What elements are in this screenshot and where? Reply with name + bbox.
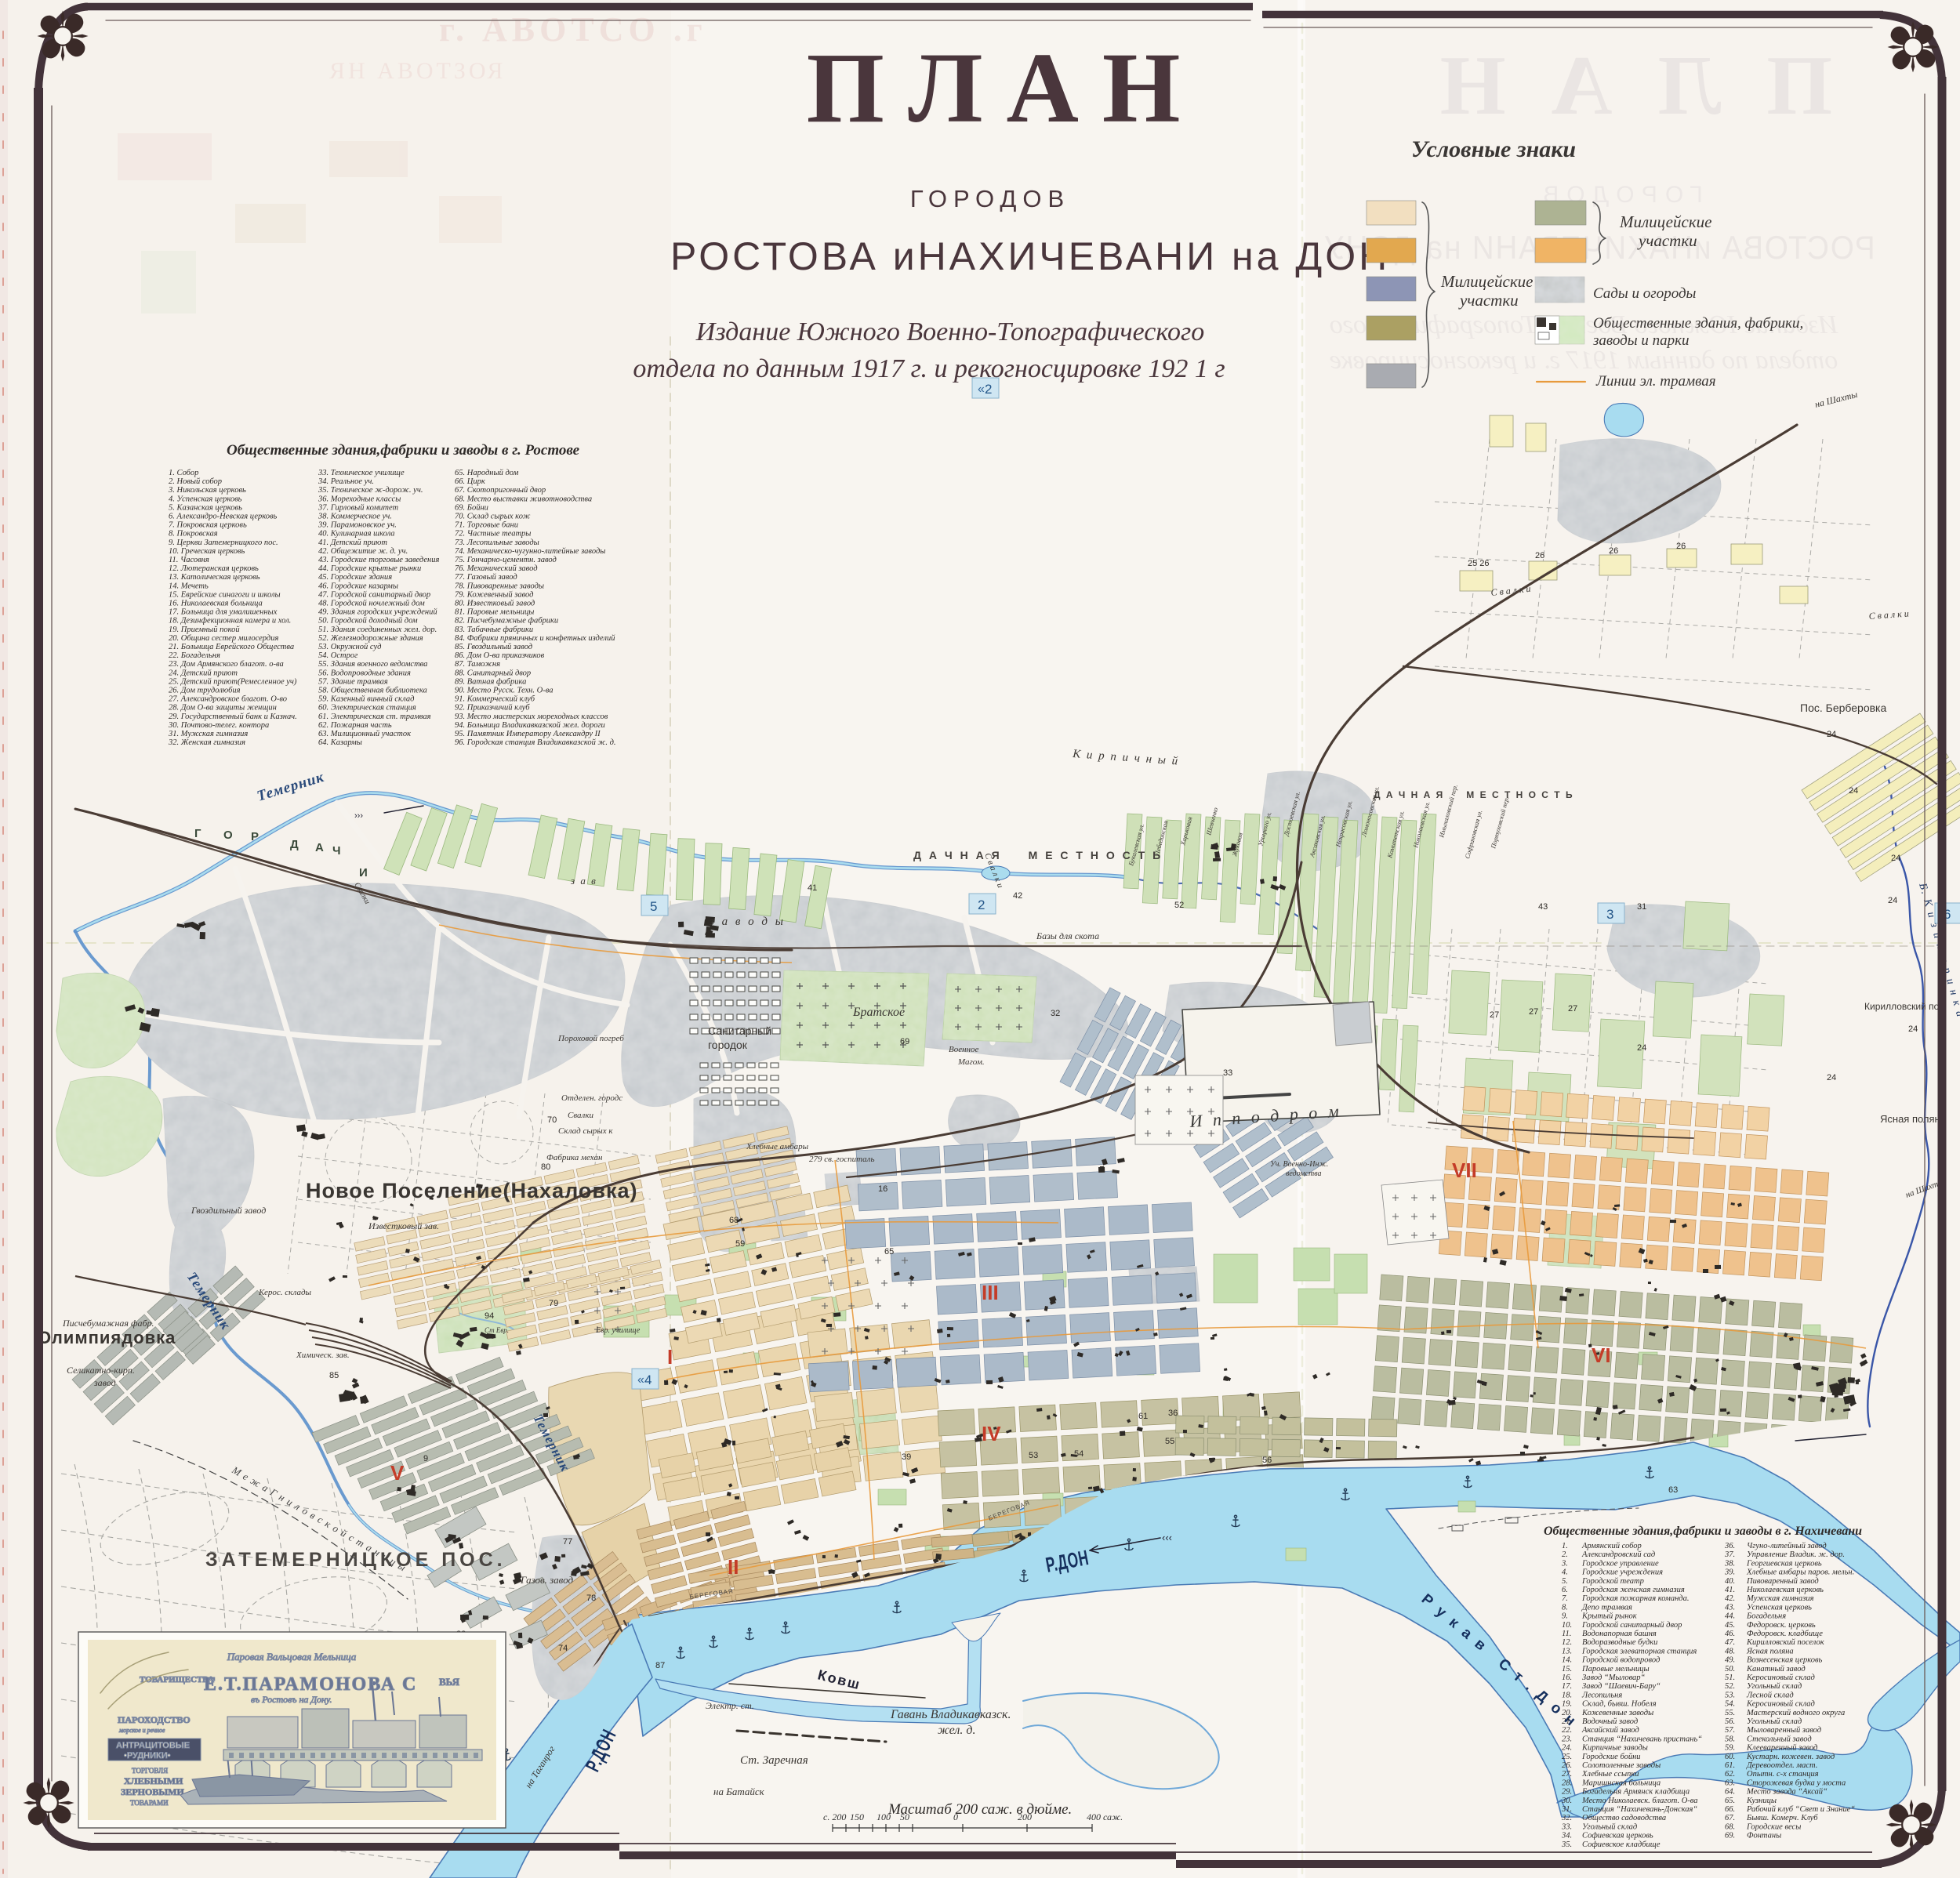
svg-text:на Батайск: на Батайск (713, 1786, 765, 1797)
svg-text:Гавань Владикавказск.: Гавань Владикавказск. (890, 1708, 1011, 1721)
svg-text:Деревоотдел. маст.: Деревоотдел. маст. (1746, 1761, 1817, 1770)
svg-text:Отделен. городс: Отделен. городс (561, 1093, 622, 1103)
svg-text:37. Гирловый комитет: 37. Гирловый комитет (318, 503, 399, 512)
svg-text:77. Газовый завод: 77. Газовый завод (455, 573, 517, 582)
svg-text:Лесопильня: Лесопильня (1581, 1691, 1622, 1699)
svg-text:Кожевенные заводы: Кожевенные заводы (1581, 1709, 1653, 1717)
svg-text:Солотоленные заводы: Солотоленные заводы (1582, 1761, 1661, 1770)
svg-text:100: 100 (877, 1811, 891, 1822)
svg-text:Водоразводные будки: Водоразводные будки (1582, 1638, 1657, 1647)
svg-text:г. АВОТСО .г: г. АВОТСО .г (439, 10, 707, 49)
svg-text:Хлебные амбары паров. мельн.: Хлебные амбары паров. мельн. (1746, 1568, 1854, 1577)
svg-text:15. Еврейские синагоги и школы: 15. Еврейские синагоги и школы (169, 590, 281, 599)
svg-text:•РУДНИКИ•: •РУДНИКИ• (124, 1751, 171, 1761)
svg-text:26: 26 (1609, 546, 1618, 556)
svg-text:45. Городские здания: 45. Городские здания (318, 573, 392, 582)
svg-text:2.: 2. (1562, 1550, 1568, 1559)
svg-text:Городское управление: Городское управление (1581, 1559, 1659, 1568)
svg-text:Фонтаны: Фонтаны (1747, 1832, 1781, 1840)
svg-text:Кирилловский пос.: Кирилловский пос. (1864, 1001, 1947, 1012)
svg-text:Вознесенская церковь: Вознесенская церковь (1747, 1656, 1823, 1665)
svg-text:66.: 66. (1725, 1805, 1735, 1814)
svg-text:Милицейские: Милицейские (1440, 272, 1533, 291)
svg-text:ЗЕРНОВЫМИ: ЗЕРНОВЫМИ (121, 1786, 184, 1797)
svg-text:Софиевское кладбище: Софиевское кладбище (1582, 1840, 1661, 1849)
svg-text:95. Памятник Императору Алекса: 95. Памятник Императору Александру II (455, 730, 601, 738)
svg-text:29.: 29. (1562, 1788, 1572, 1797)
svg-text:75. Гончарно-цементн. завод: 75. Гончарно-цементн. завод (455, 556, 557, 564)
svg-text:I: I (667, 1345, 673, 1369)
svg-text:52: 52 (1174, 901, 1184, 910)
svg-text:65.: 65. (1725, 1797, 1735, 1805)
svg-text:51.: 51. (1725, 1673, 1735, 1682)
svg-text:Лесной склад: Лесной склад (1746, 1691, 1794, 1699)
svg-text:32: 32 (1051, 1009, 1060, 1018)
svg-text:58.: 58. (1725, 1735, 1735, 1743)
svg-text:Паровые мельницы: Паровые мельницы (1581, 1665, 1650, 1673)
svg-text:85: 85 (329, 1371, 339, 1380)
svg-text:7.: 7. (1562, 1594, 1568, 1603)
svg-text:42. Общежитие ж. д. уч.: 42. Общежитие ж. д. уч. (318, 547, 408, 556)
svg-text:38.: 38. (1724, 1559, 1735, 1568)
svg-text:Д А Ч Н А Я М Е С Т Н О С Т Ь: Д А Ч Н А Я М Е С Т Н О С Т Ь (913, 849, 1163, 861)
svg-text:74. Механическо-чугунно-литейн: 74. Механическо-чугунно-литейные заводы (455, 547, 605, 556)
svg-text:33.: 33. (1561, 1822, 1572, 1831)
svg-text:5. Казанская церковь: 5. Казанская церковь (169, 503, 242, 512)
svg-text:59.: 59. (1725, 1744, 1735, 1753)
svg-text:84. Фабрики пряничных и конфет: 84. Фабрики пряничных и конфетных издели… (455, 634, 615, 643)
svg-text:41. Детский приют: 41. Детский приют (318, 538, 387, 547)
svg-text:68: 68 (729, 1216, 739, 1225)
svg-text:69: 69 (900, 1037, 909, 1046)
svg-text:1. Собор: 1. Собор (169, 469, 198, 477)
svg-text:Мастерский водного округа: Мастерский водного округа (1746, 1709, 1845, 1717)
svg-text:Линии эл. трамвая: Линии эл. трамвая (1595, 373, 1716, 390)
svg-text:27: 27 (1529, 1007, 1538, 1017)
svg-text:54.: 54. (1725, 1700, 1735, 1709)
svg-text:20. Община сестер милосердия: 20. Община сестер милосердия (169, 634, 278, 643)
svg-text:56: 56 (1262, 1456, 1272, 1465)
svg-text:32. Женская гимназия: 32. Женская гимназия (168, 738, 245, 747)
svg-text:53.: 53. (1725, 1691, 1735, 1699)
svg-text:Крытый рынок: Крытый рынок (1581, 1612, 1637, 1621)
svg-text:Евр. училище: Евр. училище (595, 1326, 641, 1335)
svg-text:с. 200: с. 200 (823, 1811, 846, 1822)
svg-text:3: 3 (1606, 907, 1613, 922)
svg-text:Общественные здания, фабрики,: Общественные здания, фабрики, (1593, 315, 1803, 332)
svg-text:Место Николаевск. благот. О-ва: Место Николаевск. благот. О-ва (1581, 1797, 1698, 1805)
svg-text:41.: 41. (1725, 1586, 1735, 1594)
svg-text:14. Мечеть: 14. Мечеть (169, 582, 209, 590)
svg-text:83. Табачные фабрики: 83. Табачные фабрики (455, 626, 533, 634)
svg-text:6.: 6. (1562, 1586, 1568, 1594)
svg-text:Клееваренный завод: Клееваренный завод (1746, 1744, 1817, 1753)
svg-text:48. Городской ночлежный дом: 48. Городской ночлежный дом (318, 600, 425, 608)
svg-text:41: 41 (808, 883, 817, 893)
svg-text:27: 27 (1568, 1004, 1577, 1014)
svg-text:Писчебумажная фабр.: Писчебумажная фабр. (62, 1318, 154, 1329)
svg-text:Рабочий клуб “Свет и Знание“: Рабочий клуб “Свет и Знание“ (1746, 1805, 1855, 1814)
svg-text:92. Приказчичий клуб: 92. Приказчичий клуб (455, 704, 530, 713)
svg-text:49.: 49. (1725, 1656, 1735, 1665)
svg-text:Угольный склад: Угольный склад (1747, 1682, 1802, 1691)
svg-text:40.: 40. (1725, 1577, 1735, 1586)
svg-text:82. Писчебумажные фабрики: 82. Писчебумажные фабрики (455, 617, 558, 626)
svg-text:68. Место выставки животноводс: 68. Место выставки животноводства (455, 495, 592, 503)
svg-text:Базы для скота: Базы для скота (1036, 930, 1099, 941)
svg-text:47. Городской санитарный двор: 47. Городской санитарный двор (318, 590, 430, 599)
svg-text:Городской театр: Городской театр (1581, 1577, 1644, 1586)
svg-text:ПЛАН: ПЛАН (807, 32, 1204, 143)
svg-text:Городские весы: Городские весы (1746, 1822, 1801, 1831)
svg-text:Управление Владик. ж. дор.: Управление Владик. ж. дор. (1747, 1550, 1845, 1559)
svg-text:Д: Д (290, 838, 299, 851)
svg-text:Гвоздильный завод: Гвоздильный завод (191, 1205, 266, 1216)
svg-text:Богадельня Армянск кладбища: Богадельня Армянск кладбища (1581, 1788, 1690, 1797)
svg-text:участки: участки (1637, 231, 1697, 250)
svg-text:участки: участки (1458, 291, 1519, 310)
svg-text:Пос. Берберовка: Пос. Берберовка (1800, 702, 1886, 714)
svg-text:94. Больница Владикавказской ж: 94. Больница Владикавказской жел. дороги (455, 721, 605, 730)
svg-text:ПЛАН: ПЛАН (1395, 39, 1832, 132)
svg-text:42: 42 (1013, 891, 1022, 901)
svg-text:25 26: 25 26 (1468, 559, 1490, 568)
svg-text:66. Цирк: 66. Цирк (455, 477, 485, 486)
svg-text:Мужская гимназия: Мужская гимназия (1746, 1594, 1814, 1603)
svg-text:10. Греческая церковь: 10. Греческая церковь (169, 547, 245, 556)
svg-text:72. Частные театры: 72. Частные театры (455, 530, 531, 538)
svg-text:44.: 44. (1725, 1612, 1735, 1621)
svg-text:24.: 24. (1562, 1744, 1572, 1753)
svg-text:Федоровск. церковь: Федоровск. церковь (1747, 1621, 1816, 1630)
svg-text:26.: 26. (1562, 1761, 1572, 1770)
svg-text:Городская элеваторная станция: Городская элеваторная станция (1581, 1647, 1697, 1655)
svg-text:Городские бойни: Городские бойни (1581, 1753, 1641, 1761)
svg-text:Ст. Заречная: Ст. Заречная (740, 1754, 808, 1767)
svg-text:67. Скотопригонный двор: 67. Скотопригонный двор (455, 486, 546, 495)
svg-text:15.: 15. (1562, 1665, 1572, 1673)
svg-text:Кирпичные заводы: Кирпичные заводы (1581, 1744, 1648, 1753)
svg-text:0: 0 (953, 1811, 958, 1822)
svg-text:24: 24 (1849, 786, 1858, 796)
svg-text:Братское: Братское (852, 1006, 905, 1019)
svg-text:ТОРГОВЛЯ: ТОРГОВЛЯ (132, 1767, 168, 1775)
svg-text:150: 150 (850, 1811, 864, 1822)
svg-text:27.: 27. (1562, 1770, 1572, 1779)
svg-text:59: 59 (735, 1239, 745, 1249)
svg-text:200: 200 (1018, 1811, 1032, 1822)
svg-text:39.: 39. (1724, 1568, 1735, 1577)
svg-text:Водочный завод: Водочный завод (1582, 1717, 1638, 1726)
svg-text:400 саж.: 400 саж. (1087, 1811, 1123, 1822)
svg-text:31. Мужская гимназия: 31. Мужская гимназия (168, 730, 248, 738)
svg-text:Химическ. зав.: Химическ. зав. (296, 1351, 350, 1360)
svg-text:Свалки: Свалки (568, 1111, 593, 1120)
svg-text:36. Мореходные классы: 36. Мореходные классы (318, 495, 401, 503)
svg-text:58. Общественная библиотека: 58. Общественная библиотека (318, 687, 427, 695)
svg-text:91. Коммерческий клуб: 91. Коммерческий клуб (455, 695, 535, 704)
svg-text:63.: 63. (1725, 1779, 1735, 1787)
svg-text:ведомства: ведомства (1286, 1169, 1322, 1178)
svg-text:81. Паровые мельницы: 81. Паровые мельницы (455, 608, 534, 617)
svg-text:34.: 34. (1561, 1832, 1572, 1840)
svg-text:10.: 10. (1562, 1621, 1572, 1630)
svg-text:61: 61 (1138, 1412, 1148, 1421)
svg-text:Ясная поляна: Ясная поляна (1880, 1113, 1947, 1125)
svg-text:24: 24 (1908, 1024, 1918, 1034)
svg-text:Условные знаки: Условные знаки (1411, 136, 1576, 162)
svg-text:VI: VI (1592, 1344, 1611, 1367)
svg-text:Пивоваренный завод: Пивоваренный завод (1746, 1577, 1819, 1586)
svg-text:94: 94 (485, 1311, 494, 1321)
svg-text:Известковый зав.: Известковый зав. (368, 1220, 439, 1231)
svg-text:32.: 32. (1561, 1814, 1572, 1822)
svg-text:70. Склад сырых кож: 70. Склад сырых кож (455, 513, 531, 521)
svg-text:Издание Южного Военно-Топограф: Издание Южного Военно-Топографического (695, 317, 1204, 346)
svg-text:городок: городок (708, 1039, 748, 1051)
svg-text:24: 24 (1827, 730, 1836, 739)
svg-text:Богадельня: Богадельня (1746, 1612, 1786, 1621)
svg-text:55. Здания военного ведомства: 55. Здания военного ведомства (318, 660, 427, 669)
svg-text:69. Бойни: 69. Бойни (455, 503, 488, 512)
svg-text:51. Здания соединенных жел. до: 51. Здания соединенных жел. дор. (318, 626, 437, 634)
svg-text:Селикатно-кирп.: Селикатно-кирп. (67, 1365, 135, 1376)
svg-text:«: « (637, 1373, 644, 1387)
svg-text:Угольный склад: Угольный склад (1747, 1717, 1802, 1726)
svg-text:III: III (982, 1281, 999, 1304)
svg-text:4. Успенская церковь: 4. Успенская церковь (169, 495, 242, 503)
svg-text:50: 50 (900, 1811, 909, 1822)
svg-text:5.: 5. (1562, 1577, 1568, 1586)
svg-text:49. Здания городских учреждени: 49. Здания городских учреждений (318, 608, 437, 617)
svg-text:70: 70 (547, 1115, 557, 1125)
svg-text:«: « (978, 383, 985, 396)
svg-text:Склад, бывш. Нобеля: Склад, бывш. Нобеля (1582, 1700, 1657, 1709)
svg-text:52.: 52. (1725, 1682, 1735, 1691)
svg-text:73. Лесопильные заводы: 73. Лесопильные заводы (455, 538, 539, 547)
svg-text:5: 5 (650, 899, 657, 914)
svg-text:65. Народный дом: 65. Народный дом (455, 469, 519, 477)
svg-text:62.: 62. (1725, 1770, 1735, 1779)
svg-text:Фабрика механ: Фабрика механ (546, 1153, 603, 1162)
svg-text:3.: 3. (1561, 1559, 1568, 1568)
svg-text:Мыловаренный завод: Мыловаренный завод (1746, 1726, 1821, 1735)
svg-text:74: 74 (558, 1644, 568, 1653)
svg-text:Городская пожарная команда.: Городская пожарная команда. (1581, 1594, 1689, 1603)
svg-text:И: И (359, 866, 368, 879)
svg-text:II: II (728, 1555, 739, 1579)
svg-text:Керос. склады: Керос. склады (258, 1288, 312, 1297)
svg-text:IV: IV (982, 1422, 1001, 1445)
svg-text:6. Александро-Невская церковь: 6. Александро-Невская церковь (169, 513, 278, 521)
svg-text:Склад сырых к: Склад сырых к (558, 1126, 613, 1136)
svg-text:76. Механический завод: 76. Механический завод (455, 564, 538, 573)
svg-text:26: 26 (1676, 542, 1686, 551)
svg-text:Милицейские: Милицейские (1619, 212, 1711, 231)
svg-text:Паровая Вальцовая Мельница: Паровая Вальцовая Мельница (227, 1651, 357, 1663)
svg-text:Завод “Мыловар“: Завод “Мыловар“ (1582, 1673, 1646, 1682)
svg-text:12. Лютеранская церковь: 12. Лютеранская церковь (169, 564, 259, 573)
svg-text:85. Гвоздильный завод: 85. Гвоздильный завод (455, 643, 532, 651)
svg-text:54: 54 (1074, 1449, 1083, 1459)
svg-text:V: V (390, 1461, 405, 1485)
svg-text:43: 43 (1538, 902, 1548, 912)
svg-text:13. Католическая церковь: 13. Католическая церковь (169, 573, 260, 582)
svg-text:Кирилловский поселок: Кирилловский поселок (1746, 1638, 1824, 1647)
svg-text:Аксайский завод: Аксайский завод (1581, 1726, 1639, 1735)
svg-text:20.: 20. (1562, 1709, 1572, 1717)
svg-text:ТОВАРАМИ: ТОВАРАМИ (130, 1799, 169, 1807)
svg-text:2. Новый собор: 2. Новый собор (169, 477, 222, 486)
svg-text:62. Пожарная часть: 62. Пожарная часть (318, 721, 392, 730)
svg-text:11.: 11. (1562, 1630, 1571, 1638)
svg-text:›››: ››› (354, 811, 363, 821)
svg-text:57.: 57. (1725, 1726, 1735, 1735)
svg-text:Керосиновый склад: Керосиновый склад (1746, 1700, 1815, 1709)
svg-text:Е.Т.ПАРАМОНОВА С: Е.Т.ПАРАМОНОВА С (204, 1674, 417, 1695)
svg-text:Хлебные амбары: Хлебные амбары (746, 1142, 809, 1151)
svg-text:31: 31 (1637, 902, 1646, 912)
svg-text:88. Санитарный двор: 88. Санитарный двор (455, 669, 531, 677)
svg-text:18.: 18. (1562, 1691, 1572, 1699)
svg-text:VII: VII (1452, 1159, 1477, 1182)
svg-text:87. Таможня: 87. Таможня (455, 660, 500, 669)
svg-text:ВЬЯ: ВЬЯ (439, 1676, 460, 1688)
svg-text:43.: 43. (1725, 1603, 1735, 1612)
svg-text:Депо трамвая: Депо трамвая (1581, 1603, 1632, 1612)
svg-text:Керосиновый склад: Керосиновый склад (1746, 1673, 1815, 1682)
svg-text:33. Техническое училище: 33. Техническое училище (318, 469, 405, 477)
svg-text:46. Городские казармы: 46. Городские казармы (318, 582, 398, 590)
svg-text:Сторожевая будка у моста: Сторожевая будка у моста (1747, 1779, 1846, 1787)
svg-text:Успенская церковь: Успенская церковь (1747, 1603, 1812, 1612)
svg-text:13.: 13. (1562, 1647, 1572, 1655)
svg-text:8.: 8. (1562, 1603, 1568, 1612)
svg-text:67.: 67. (1725, 1814, 1735, 1822)
svg-text:заводы и парки: заводы и парки (1592, 332, 1690, 349)
svg-text:Бывш. Комерч. Клуб: Бывш. Комерч. Клуб (1746, 1814, 1818, 1822)
svg-text:53. Окружной суд: 53. Окружной суд (318, 643, 381, 651)
svg-text:Стекольный завод: Стекольный завод (1747, 1735, 1812, 1743)
svg-text:Общество садоводства: Общество садоводства (1582, 1814, 1666, 1822)
svg-text:Уч. Военно-Инж.: Уч. Военно-Инж. (1270, 1160, 1328, 1169)
svg-text:Магом.: Магом. (957, 1057, 985, 1067)
svg-text:61. Электрическая ст. трамвая: 61. Электрическая ст. трамвая (318, 713, 431, 721)
svg-text:24: 24 (1891, 854, 1900, 863)
svg-text:90. Место Русск. Техн. О-ва: 90. Место Русск. Техн. О-ва (455, 687, 553, 695)
svg-text:55: 55 (1165, 1437, 1174, 1446)
svg-text:93. Место мастерских мореходны: 93. Место мастерских мореходных классов (455, 713, 608, 721)
svg-text:65: 65 (884, 1247, 894, 1256)
svg-text:9.: 9. (1562, 1612, 1568, 1621)
svg-text:57. Здание трамвая: 57. Здание трамвая (318, 677, 388, 686)
svg-text:64.: 64. (1725, 1788, 1735, 1797)
svg-text:Ст Евр.: Ст Евр. (485, 1326, 509, 1334)
svg-text:77: 77 (563, 1537, 572, 1547)
svg-text:29. Государственный банк и Каз: 29. Государственный банк и Казнач. (169, 713, 297, 721)
svg-text:Софиевская церковь: Софиевская церковь (1582, 1832, 1653, 1840)
svg-text:Городской санитарный двор: Городской санитарный двор (1581, 1621, 1682, 1630)
svg-text:въ Ростовъ на Дону.: въ Ростовъ на Дону. (251, 1694, 332, 1705)
svg-text:55.: 55. (1725, 1709, 1735, 1717)
svg-text:Городская женская гимназия: Городская женская гимназия (1581, 1586, 1685, 1594)
svg-text:завод: завод (93, 1377, 116, 1388)
svg-text:Общественные здания,фабрики и: Общественные здания,фабрики и заводы в г… (1544, 1525, 1862, 1538)
svg-text:‹‹‹: ‹‹‹ (1162, 1532, 1172, 1543)
svg-text:Городской водопровод: Городской водопровод (1581, 1656, 1660, 1665)
svg-text:Ч: Ч (332, 844, 341, 858)
svg-text:80. Известковый завод: 80. Известковый завод (455, 600, 535, 608)
svg-text:71. Торговые бани: 71. Торговые бани (455, 521, 518, 530)
svg-text:отдела по данным 1917 г. и рек: отдела по данным 1917 г. и рекогносциров… (633, 354, 1225, 383)
svg-text:А: А (315, 841, 324, 854)
svg-text:ТОВАРИЩЕСТВА: ТОВАРИЩЕСТВА (140, 1675, 214, 1684)
svg-text:Пороховой погреб: Пороховой погреб (557, 1034, 624, 1043)
svg-text:22.: 22. (1562, 1726, 1572, 1735)
svg-text:28.: 28. (1562, 1779, 1572, 1787)
svg-text:Армянский собор: Армянский собор (1581, 1542, 1642, 1550)
svg-text:36: 36 (1168, 1409, 1178, 1418)
svg-text:Электр. ст.: Электр. ст. (706, 1700, 754, 1711)
svg-text:79. Кожевенный завод: 79. Кожевенный завод (455, 590, 533, 599)
svg-text:61.: 61. (1725, 1761, 1735, 1770)
svg-text:24: 24 (1637, 1043, 1646, 1053)
svg-text:жел. д.: жел. д. (938, 1724, 975, 1737)
svg-text:Угольный склад: Угольный склад (1582, 1822, 1637, 1831)
svg-text:46.: 46. (1725, 1630, 1735, 1638)
svg-text:36.: 36. (1724, 1542, 1735, 1550)
svg-text:Газов. завод: Газов. завод (520, 1574, 573, 1586)
svg-text:60. Электрическая станция: 60. Электрическая станция (318, 704, 416, 713)
svg-text:Ясная поляна: Ясная поляна (1746, 1647, 1794, 1655)
svg-text:60.: 60. (1725, 1753, 1735, 1761)
svg-text:11. Часовня: 11. Часовня (169, 556, 209, 564)
svg-text:Военное: Военное (949, 1045, 979, 1054)
svg-text:16: 16 (878, 1184, 887, 1194)
svg-text:78. Пивоваренные заводы: 78. Пивоваренные заводы (455, 582, 544, 590)
svg-text:Городские учреждения: Городские учреждения (1581, 1568, 1663, 1577)
svg-text:ХЛЕБНЫМИ: ХЛЕБНЫМИ (124, 1775, 183, 1786)
svg-text:8. Покровская: 8. Покровская (169, 530, 218, 538)
svg-text:23.: 23. (1562, 1735, 1572, 1743)
svg-text:Хлебные ссыпки: Хлебные ссыпки (1581, 1770, 1639, 1779)
svg-text:22. Богадельня: 22. Богадельня (169, 651, 220, 660)
svg-text:Маришнская больница: Маришнская больница (1581, 1779, 1661, 1787)
svg-text:21. Больница Еврейского Общест: 21. Больница Еврейского Общества (169, 643, 294, 651)
svg-text:56.: 56. (1725, 1717, 1735, 1726)
svg-text:87: 87 (655, 1661, 665, 1670)
svg-text:Завод “Шаевич-Бару“: Завод “Шаевич-Бару“ (1582, 1682, 1661, 1691)
svg-text:19.: 19. (1562, 1700, 1572, 1709)
svg-text:Канатный завод: Канатный завод (1746, 1665, 1806, 1673)
svg-text:33: 33 (1223, 1068, 1232, 1078)
svg-text:9. Церкви Затемерницкого пос.: 9. Церкви Затемерницкого пос. (169, 538, 278, 547)
svg-text:з а в о д ы: з а в о д ы (709, 916, 786, 928)
svg-text:4.: 4. (1562, 1568, 1568, 1577)
svg-text:24: 24 (1827, 1073, 1836, 1082)
svg-text:Общественные здания,фабрики и: Общественные здания,фабрики и заводы в г… (227, 442, 580, 459)
svg-text:43. Городские торговые заведен: 43. Городские торговые заведения (318, 556, 439, 564)
svg-text:53: 53 (1029, 1451, 1038, 1460)
svg-text:28. Дом О-ва защиты женщин: 28. Дом О-ва защиты женщин (169, 704, 277, 713)
svg-text:Федоровск. кладбище: Федоровск. кладбище (1747, 1630, 1823, 1638)
svg-text:Георгиевская церковь: Георгиевская церковь (1746, 1559, 1822, 1568)
svg-text:79: 79 (549, 1299, 558, 1308)
svg-text:40. Кулинарная школа: 40. Кулинарная школа (318, 530, 395, 538)
svg-text:морское и речное: морское и речное (118, 1727, 165, 1734)
svg-text:86. Дом О-ва приказчиков: 86. Дом О-ва приказчиков (455, 651, 545, 660)
svg-text:18. Дезинфекционная камера и х: 18. Дезинфекционная камера и хол. (169, 617, 291, 626)
